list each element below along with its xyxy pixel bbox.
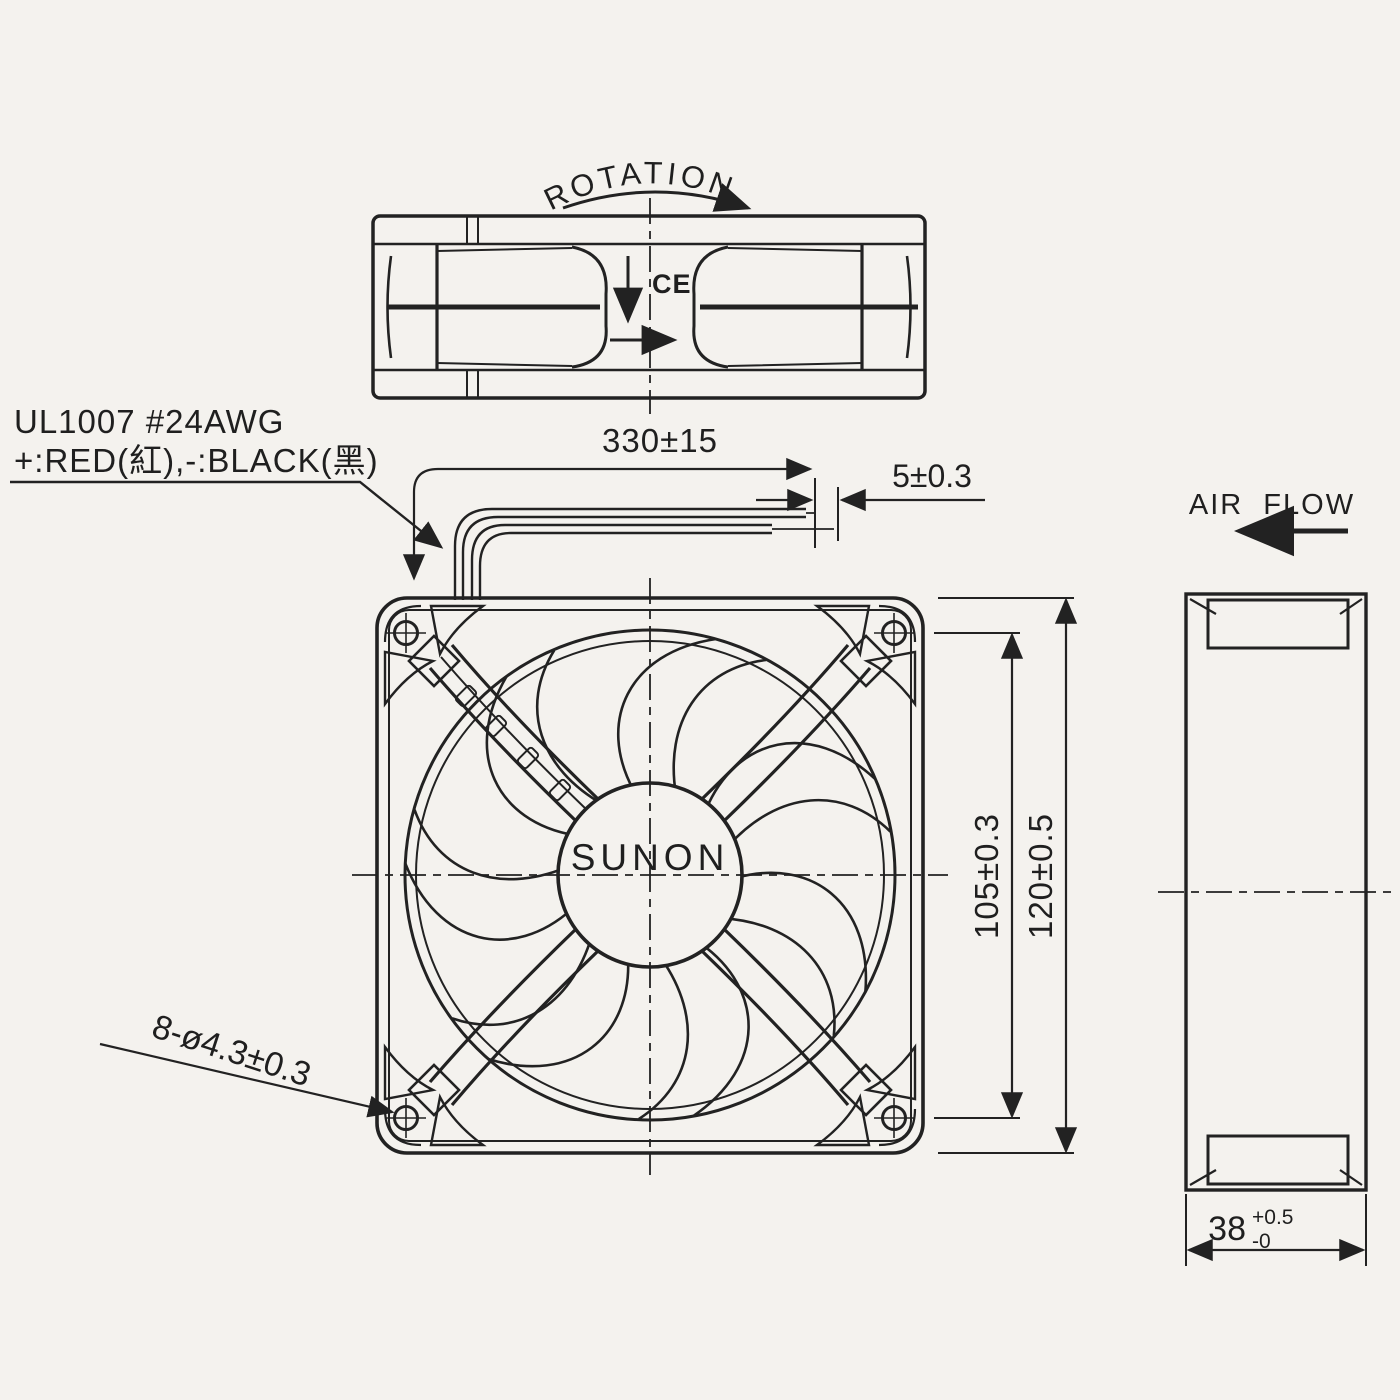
air-flow-label: AIR FLOW xyxy=(1189,489,1355,521)
dim-tinning-length: 5±0.3 xyxy=(756,458,985,548)
side-view xyxy=(1158,594,1394,1190)
dim-frame-size: 120±0.5 xyxy=(938,598,1074,1153)
wire-channel-slots xyxy=(455,685,572,802)
dim-depth-text: 38 xyxy=(1208,1210,1246,1248)
ce-mark: CE xyxy=(652,269,692,299)
fan-outline-drawing: ROTATION CE UL1007 #24AWG +:RED(紅),-:BLA… xyxy=(0,0,1400,1400)
wire-leader-line xyxy=(10,482,441,547)
corner-boss-top-right xyxy=(817,606,915,704)
mounting-hole-callout: 8-ø4.3±0.3 xyxy=(100,1007,392,1112)
bare-wire-tips xyxy=(772,513,834,529)
brand-label: SUNON xyxy=(571,837,730,878)
dim-depth-tol-upper: +0.5 xyxy=(1252,1206,1293,1229)
side-bottom-flange xyxy=(1208,1136,1348,1184)
dim-frame-size-text: 120±0.5 xyxy=(1022,813,1059,939)
side-top-flange xyxy=(1208,600,1348,648)
lead-wires xyxy=(455,509,834,600)
corner-boss-bottom-left xyxy=(385,1047,483,1145)
front-view: SUNON xyxy=(352,578,948,1175)
top-profile-view: CE xyxy=(373,198,925,414)
air-flow-indicator: AIR FLOW xyxy=(1189,489,1355,531)
wire-spec-callout: UL1007 #24AWG +:RED(紅),-:BLACK(黑) xyxy=(10,403,441,547)
rotation-indicator: ROTATION xyxy=(538,155,748,217)
dim-lead-length-text: 330±15 xyxy=(602,422,718,459)
dim-tinning-text: 5±0.3 xyxy=(892,458,972,494)
drawing-sheet: ROTATION CE UL1007 #24AWG +:RED(紅),-:BLA… xyxy=(0,0,1400,1400)
mounting-hole-text: 8-ø4.3±0.3 xyxy=(148,1007,316,1094)
corner-boss-bottom-right xyxy=(817,1047,915,1145)
wire-color-text: +:RED(紅),-:BLACK(黑) xyxy=(14,442,379,479)
rotation-label: ROTATION xyxy=(538,155,740,217)
dim-depth-tol-lower: -0 xyxy=(1252,1230,1271,1253)
dim-hole-pitch-text: 105±0.3 xyxy=(968,813,1005,939)
wire-spec-text: UL1007 #24AWG xyxy=(14,403,284,440)
dim-depth: 38 +0.5 -0 xyxy=(1186,1194,1366,1266)
